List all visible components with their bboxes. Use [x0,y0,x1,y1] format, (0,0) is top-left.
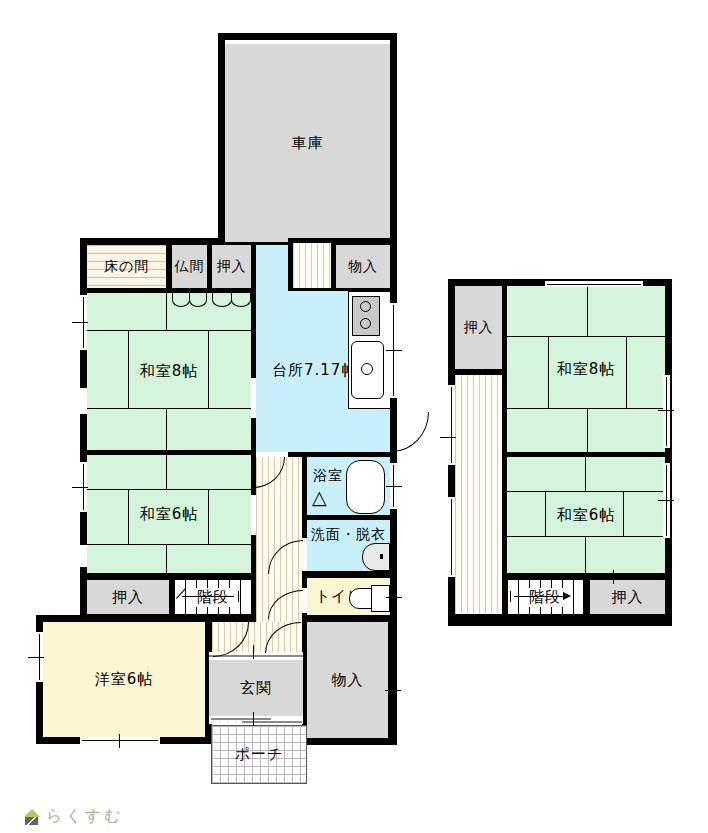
tatami-line [545,491,546,536]
wall-tick [386,597,402,598]
tatami-line [166,455,167,489]
wall-tick [658,410,674,411]
room-monoire-bottom: 物入 [307,622,388,738]
room-washitsu8-1f-label: 和室8帖 [140,362,199,381]
wall-tick [72,322,88,323]
room-garage: 車庫 [225,44,390,242]
room-washitsu6-2f-label: 和室6帖 [557,506,616,525]
wall-tick [119,734,120,748]
room-kitchen-label: 台所7.17帖 [272,361,357,380]
room-oshiire-top: 押入 [212,245,251,288]
sliding-door-icon [212,293,232,307]
stove-burner-icon [360,301,371,312]
room-kaidan-2f: 階段 [507,580,583,614]
tatami-line [585,536,586,573]
room-oshiire-2f-top-label: 押入 [464,319,494,337]
room-tokonoma: 床の間 [87,245,166,288]
tatami-line [587,408,588,452]
tatami-line [166,408,167,450]
room-monoire-top-label: 物入 [348,258,378,276]
tatami-line [548,336,549,408]
room-washitsu8-1f: 和室8帖 [87,293,251,450]
stairs-arrow-head [563,592,571,600]
wall-tick [253,712,254,726]
tatami-line [87,544,251,545]
room-washitsu8-2f-label: 和室8帖 [557,360,616,379]
wall-tick [386,350,402,351]
tatami-line [166,293,167,330]
tatami-line [587,286,588,336]
washbasin-icon [362,543,390,571]
window-mullion [451,387,452,463]
folding-door-icon: △ [312,488,328,507]
tatami-line [507,491,665,492]
garage-entry-step [293,243,331,288]
sliding-door-icon [189,293,207,307]
tatami-line [87,330,251,331]
stairs-arrow [182,596,234,597]
stairs-arrow [238,591,239,602]
tatami-line [128,330,129,408]
tatami-line [507,408,665,409]
wall-tick [440,437,456,438]
room-washitsu6-1f-label: 和室6帖 [140,505,199,524]
tatami-line [166,544,167,573]
room-garage-label: 車庫 [292,134,324,153]
garage-window [225,40,390,44]
door-arc [392,412,429,452]
room-monoire-top: 物入 [336,245,390,288]
sliding-door-icon [172,293,190,307]
room-oshiire-mid: 押入 [87,580,169,614]
tatami-line [626,336,627,408]
wall-tick [385,690,401,691]
window-mullion [666,377,667,446]
room-kaidan-1f-label: 階段 [195,588,231,607]
entrance-sliding-door-panel [211,718,271,720]
room-oshiire-top-label: 押入 [217,258,247,276]
room-washitsu6-1f: 和室6帖 [87,455,251,573]
entrance-sliding-door-panel [242,721,302,723]
wall-tick [253,645,254,659]
engawa-corridor [455,375,502,614]
window-mullion [82,740,158,741]
room-genkan-label: 玄関 [240,679,272,698]
door-opening [251,378,256,418]
room-bath-label: 浴室 [313,467,343,485]
wall-tick [658,500,674,501]
wall-tick [386,486,402,487]
stove-burner-icon [360,318,371,329]
stairs-arrow [510,591,511,602]
floor-plan: 車庫 床の間 仏間 押入 台所7.17帖 物入 和室8帖 和室6帖 [0,0,708,833]
room-tokonoma-label: 床の間 [104,258,149,276]
logo-text: らくすむ [46,806,124,827]
porch: ポーチ [211,725,307,784]
window [80,388,87,414]
toilet-tank-icon [371,585,390,612]
room-kaidan-1f: 階段 [174,580,252,614]
room-washitsu8-2f: 和室8帖 [507,286,665,452]
tatami-line [623,491,624,536]
site-logo: らくすむ [24,806,124,827]
room-yoshitsu-label: 洋室6帖 [95,670,154,689]
room-oshiire-mid-label: 押入 [112,588,144,607]
room-monoire-bottom-label: 物入 [332,671,364,690]
window-mullion [547,284,641,285]
wall-tick [72,487,88,488]
washbasin-faucet-icon [380,554,383,559]
tatami-line [208,489,209,544]
wall-tick [28,657,44,658]
room-oshiire-2f-top: 押入 [455,286,502,369]
window-mullion [451,499,452,575]
room-oshiire-2f-bottom-label: 押入 [612,588,644,607]
porch-label: ポーチ [235,745,284,764]
door-opening [251,495,256,535]
room-butsuma: 仏間 [172,245,207,288]
room-washitsu6-2f: 和室6帖 [507,457,665,573]
tatami-line [208,330,209,408]
room-yoshitsu: 洋室6帖 [43,622,205,737]
room-senmen-label: 洗面・脱衣 [311,526,386,544]
window [80,545,87,567]
sliding-door-icon [231,293,251,307]
tatami-line [507,336,665,337]
tatami-line [585,457,586,491]
room-butsuma-label: 仏間 [175,258,205,276]
stairs-arrow [514,596,564,597]
tatami-line [87,489,251,490]
bathtub-icon [346,460,385,514]
room-kaidan-2f-label: 階段 [527,588,563,607]
logo-house-icon [24,809,40,825]
tatami-line [87,408,251,409]
tatami-line [128,489,129,544]
sink-drain-icon [361,363,373,375]
room-genkan: 玄関 [209,660,303,716]
room-oshiire-2f-bottom: 押入 [590,580,665,614]
wall-tick [613,570,614,584]
tatami-line [507,536,665,537]
